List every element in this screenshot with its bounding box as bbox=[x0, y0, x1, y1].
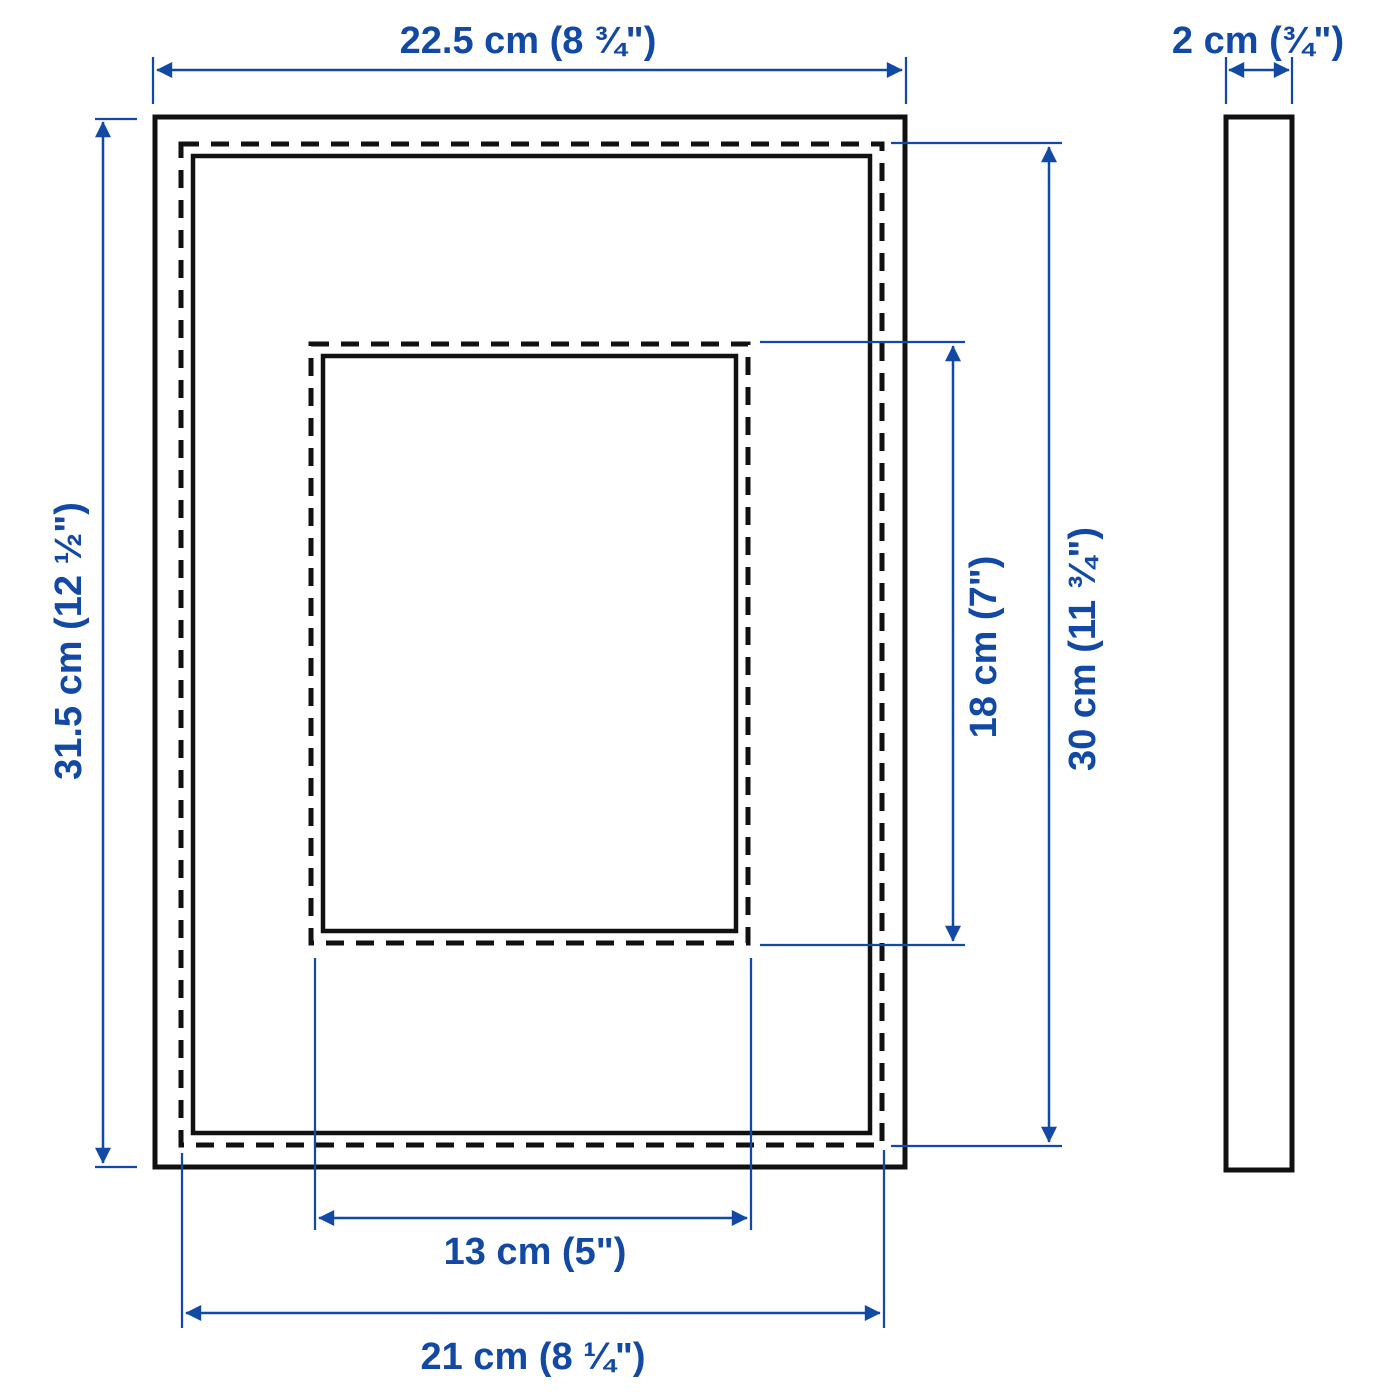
picture-opening-dashed-outline bbox=[311, 344, 748, 943]
dimension-outer-width: 22.5 cm (8 ¾") bbox=[153, 20, 906, 104]
dimension-outer-height: 31.5 cm (12 ½") bbox=[48, 119, 137, 1167]
dimension-thickness: 2 cm (¾") bbox=[1172, 20, 1344, 104]
dimension-label-thickness: 2 cm (¾") bbox=[1172, 20, 1344, 62]
dimension-label-back-width: 21 cm (8 ¼") bbox=[420, 1336, 645, 1378]
side-profile-outline bbox=[1226, 117, 1292, 1170]
frame-outer-edge bbox=[155, 117, 905, 1167]
frame-front-view bbox=[155, 117, 905, 1167]
dimension-label-outer-width: 22.5 cm (8 ¾") bbox=[400, 20, 657, 62]
dimension-diagram-svg: 22.5 cm (8 ¾") 2 cm (¾") 31.5 cm (12 ½")… bbox=[0, 0, 1400, 1400]
picture-opening-inner-edge bbox=[323, 356, 736, 931]
dimension-label-outer-height: 31.5 cm (12 ½") bbox=[48, 502, 90, 780]
dimension-label-opening-height: 18 cm (7") bbox=[963, 556, 1005, 739]
back-panel-dashed-outline bbox=[181, 144, 882, 1145]
dimension-opening-width: 13 cm (5") bbox=[315, 958, 751, 1273]
dimension-label-back-height: 30 cm (11 ¾") bbox=[1062, 527, 1104, 771]
dimension-label-opening-width: 13 cm (5") bbox=[444, 1231, 627, 1273]
frame-inner-edge bbox=[193, 156, 870, 1133]
frame-side-view bbox=[1226, 117, 1292, 1170]
frame-dimension-diagram: 22.5 cm (8 ¾") 2 cm (¾") 31.5 cm (12 ½")… bbox=[0, 0, 1400, 1400]
